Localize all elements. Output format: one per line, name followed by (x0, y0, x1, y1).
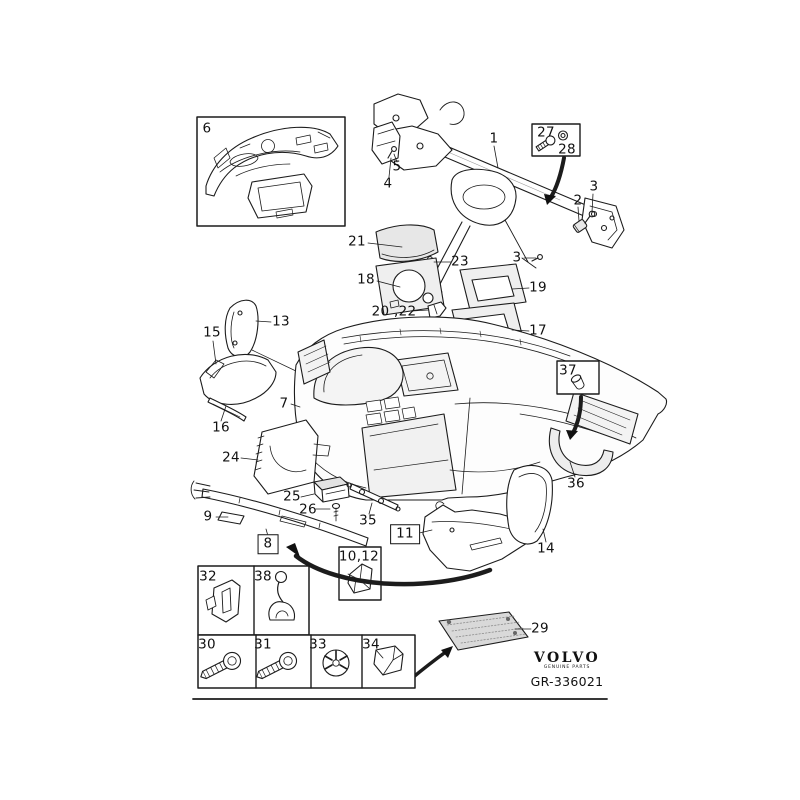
callout-4: 4 (384, 177, 393, 191)
callout-8: 8 (258, 534, 279, 554)
callout-9: 9 (204, 510, 213, 524)
callout-6: 6 (203, 122, 212, 136)
diagram-canvas: 645127282332123181920 ,22171315377162436… (0, 0, 800, 800)
part15-cluster-surround (200, 354, 276, 404)
part33-washer-glyph (323, 650, 349, 676)
part19-bezel (460, 264, 526, 310)
callout-32: 32 (199, 570, 217, 584)
dashboard-main-body (294, 317, 666, 500)
callout-16: 16 (212, 421, 230, 435)
callout-31: 31 (254, 638, 272, 652)
callout-20-22: 20 ,22 (372, 305, 417, 319)
callout-38: 38 (254, 570, 272, 584)
brand-block: VOLVO GENUINE PARTS GR-336021 (521, 651, 613, 689)
callout-34: 34 (362, 638, 380, 652)
callout-2: 2 (574, 194, 583, 208)
callout-23: 23 (451, 255, 469, 269)
part14-side-panel (507, 465, 553, 543)
callout-33: 33 (309, 638, 327, 652)
callout-10-12: 10,12 (339, 550, 379, 564)
callout-36: 36 (567, 477, 585, 491)
callout-24: 24 (222, 451, 240, 465)
callout-19: 19 (529, 281, 547, 295)
callout-21: 21 (348, 235, 366, 249)
callout-11: 11 (390, 524, 420, 544)
brand-logo: VOLVO (521, 651, 613, 665)
callout-35: 35 (359, 514, 377, 528)
part29-grille (411, 612, 528, 679)
callout-30: 30 (198, 638, 216, 652)
part21-lid (376, 225, 438, 261)
callout-29: 29 (531, 622, 549, 636)
callout-14: 14 (537, 542, 555, 556)
callout-13: 13 (272, 315, 290, 329)
part25-module (314, 477, 349, 502)
callout-3: 3 (513, 251, 522, 265)
callout-26: 26 (299, 503, 317, 517)
callout-27: 27 (537, 126, 555, 140)
callout-1: 1 (490, 132, 499, 146)
part26-screw (333, 504, 340, 522)
exploded-diagram-art (0, 0, 800, 800)
callout-15: 15 (203, 326, 221, 340)
drawing-code: GR-336021 (521, 674, 613, 689)
callout-3: 3 (590, 180, 599, 194)
callout-5: 5 (393, 160, 402, 174)
callout-28: 28 (558, 143, 576, 157)
callout-18: 18 (357, 273, 375, 287)
callout-17: 17 (529, 324, 547, 338)
callout-7: 7 (280, 397, 289, 411)
callout-37: 37 (559, 364, 577, 378)
inset-box-part6 (197, 117, 345, 226)
